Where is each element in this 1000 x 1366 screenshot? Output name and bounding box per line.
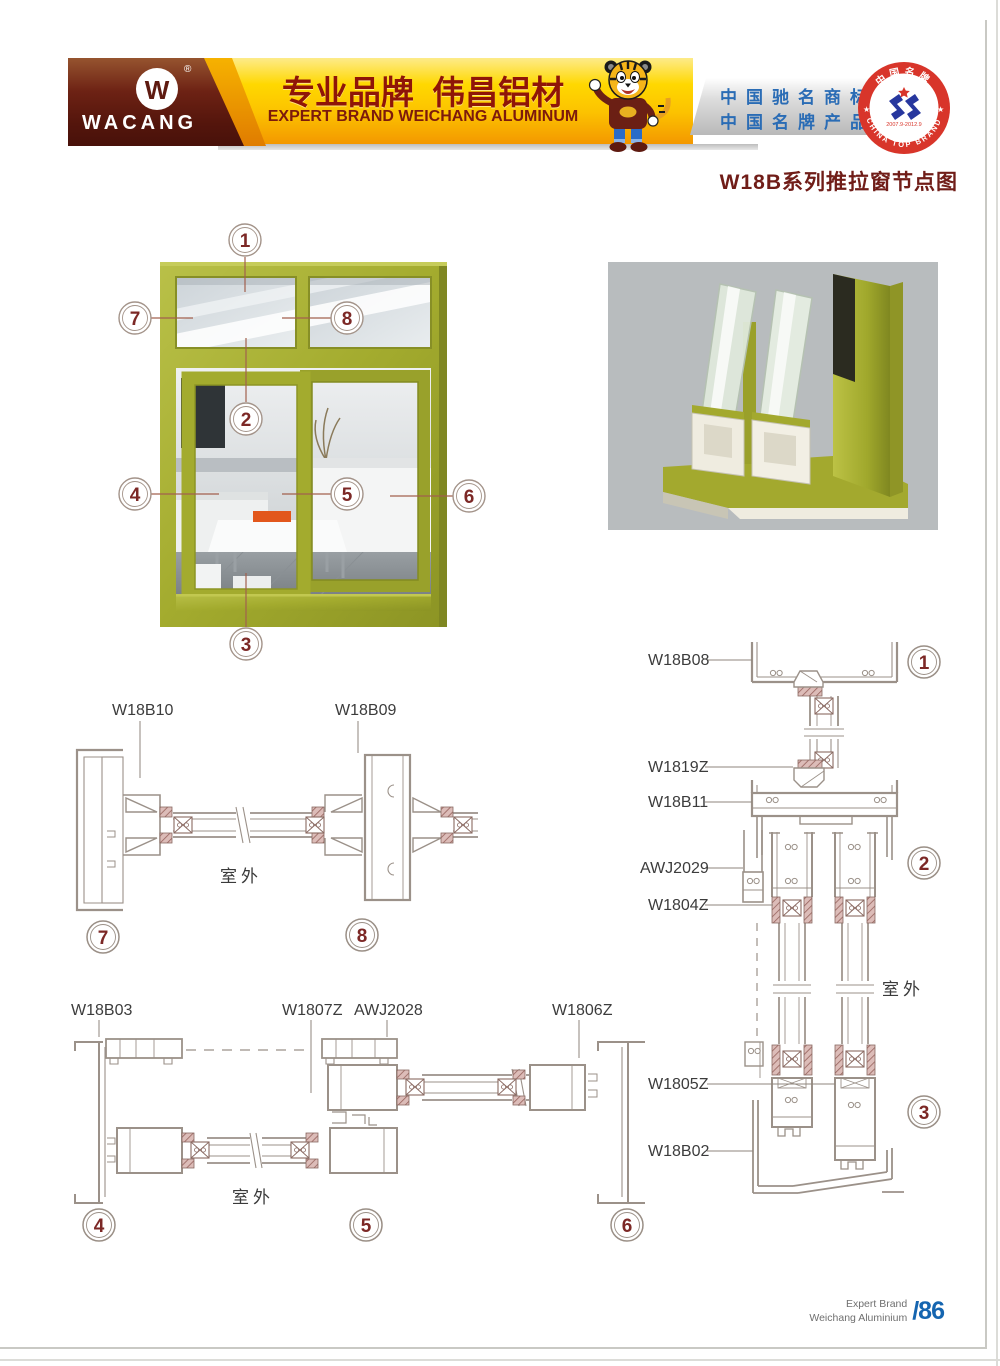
section-detail-1-2-3: W18B08 W1819Z W18B11 AWJ2029 W1804Z W180… <box>620 630 1000 1230</box>
seal-star-right: ★ <box>937 105 944 114</box>
svg-text:2: 2 <box>919 854 930 875</box>
section-7-8-drawing <box>77 750 478 910</box>
svg-text:2: 2 <box>241 410 252 431</box>
glazing-gaskets-right <box>772 671 875 1075</box>
china-top-brand-seal: 中国名牌 CHINA TOP BRAND ★ ★ 2007.9-2012.9 <box>856 60 952 156</box>
label-W1807Z: W1807Z <box>282 1002 343 1019</box>
label-AWJ2028: AWJ2028 <box>354 1002 423 1019</box>
window-overview-render: 1 7 8 2 4 5 6 <box>105 220 495 672</box>
page-edge-bottom-outer <box>0 1359 1000 1361</box>
callout-circle-3: 3 <box>908 1096 940 1128</box>
claim-famous-trademark: 中国驰名商标 <box>720 83 876 108</box>
svg-text:8: 8 <box>342 309 353 330</box>
callout-4: 4 <box>119 478 151 510</box>
svg-text:7: 7 <box>98 928 109 949</box>
callout-circle-2: 2 <box>908 847 940 879</box>
catalog-page: W ® WACANG 专业品牌 伟昌铝材 EXPERT BRAND WEICHA… <box>0 0 1000 1366</box>
label-W18B08: W18B08 <box>648 652 709 669</box>
page-edge-right-inner <box>985 20 987 1349</box>
section-4-5-6-drawing <box>75 1039 645 1203</box>
callout-circle-1: 1 <box>908 646 940 678</box>
section-4-5-6-annotations: W18B03 W1807Z AWJ2028 W1806Z 室外 4 5 6 <box>71 1002 643 1241</box>
slogan-chinese: 专业品牌 伟昌铝材 <box>258 66 588 114</box>
footer-line1: Expert Brand <box>809 1298 907 1312</box>
svg-text:4: 4 <box>130 485 141 506</box>
callout-3: 3 <box>230 628 262 660</box>
svg-text:1: 1 <box>919 653 930 674</box>
label-W18B03: W18B03 <box>71 1002 132 1019</box>
label-W1804Z: W1804Z <box>648 897 709 914</box>
claim-brand-product: 中国名牌产品 <box>720 108 876 133</box>
brand-name: WACANG <box>82 112 232 135</box>
label-W18B10: W18B10 <box>112 702 173 719</box>
svg-text:5: 5 <box>361 1216 372 1237</box>
glazing-gaskets-bottom <box>182 1070 525 1168</box>
section-detail-4-5-6: W18B03 W1807Z AWJ2028 W1806Z 室外 4 5 6 <box>60 990 660 1252</box>
callout-1: 1 <box>229 224 261 256</box>
slogan-english: EXPERT BRAND WEICHANG ALUMINUM <box>256 108 590 126</box>
callout-circle-7: 7 <box>87 921 119 953</box>
callout-5: 5 <box>331 478 363 510</box>
profile-3d-render <box>608 262 938 530</box>
callout-circle-4: 4 <box>83 1209 115 1241</box>
page-title: W18B系列推拉窗节点图 <box>720 166 958 196</box>
svg-text:3: 3 <box>919 1103 930 1124</box>
section-7-8-annotations: W18B10 W18B09 室外 7 8 <box>87 702 396 953</box>
svg-text:8: 8 <box>357 926 368 947</box>
seal-dates: 2007.9-2012.9 <box>886 122 921 128</box>
label-W1806Z: W1806Z <box>552 1002 613 1019</box>
registered-mark: ® <box>184 64 191 75</box>
outdoor-label-right: 室外 <box>882 980 924 999</box>
outdoor-label-top: 室外 <box>220 867 262 886</box>
brand-logo: W ® <box>108 62 208 114</box>
page-edge-right-outer <box>996 0 998 1366</box>
tiger-mascot-icon <box>578 54 678 154</box>
label-W18B11: W18B11 <box>648 794 708 811</box>
label-W1805Z: W1805Z <box>648 1076 709 1093</box>
callout-circle-5: 5 <box>350 1209 382 1241</box>
header-banner: W ® WACANG 专业品牌 伟昌铝材 EXPERT BRAND WEICHA… <box>68 58 965 150</box>
svg-text:6: 6 <box>464 487 475 508</box>
label-AWJ2029: AWJ2029 <box>640 860 709 877</box>
footer-line2: Weichang Aluminium <box>809 1312 907 1326</box>
section-detail-7-8: W18B10 W18B09 室外 7 8 <box>60 695 480 965</box>
callout-circle-8: 8 <box>346 919 378 951</box>
svg-text:1: 1 <box>240 231 251 252</box>
svg-text:7: 7 <box>130 309 141 330</box>
svg-text:3: 3 <box>241 635 252 656</box>
footer-brand-text: Expert Brand Weichang Aluminium <box>809 1298 907 1325</box>
label-W18B02: W18B02 <box>648 1143 709 1160</box>
label-W1819Z: W1819Z <box>648 759 709 776</box>
logo-letter: W <box>145 77 170 103</box>
callout-7: 7 <box>119 302 151 334</box>
seal-star-left: ★ <box>863 105 870 114</box>
wacang-logo-icon: W <box>136 68 178 110</box>
callout-6: 6 <box>453 480 485 512</box>
svg-text:5: 5 <box>342 485 353 506</box>
outdoor-label-bottom: 室外 <box>232 1188 274 1207</box>
footer: Expert Brand Weichang Aluminium /86 <box>809 1297 944 1326</box>
callout-8: 8 <box>331 302 363 334</box>
page-edge-bottom-inner <box>0 1347 987 1349</box>
page-number: /86 <box>912 1297 944 1326</box>
section-1-2-3-drawing <box>743 642 904 1193</box>
svg-text:4: 4 <box>94 1216 105 1237</box>
callout-2: 2 <box>230 403 262 435</box>
label-W18B09: W18B09 <box>335 702 396 719</box>
